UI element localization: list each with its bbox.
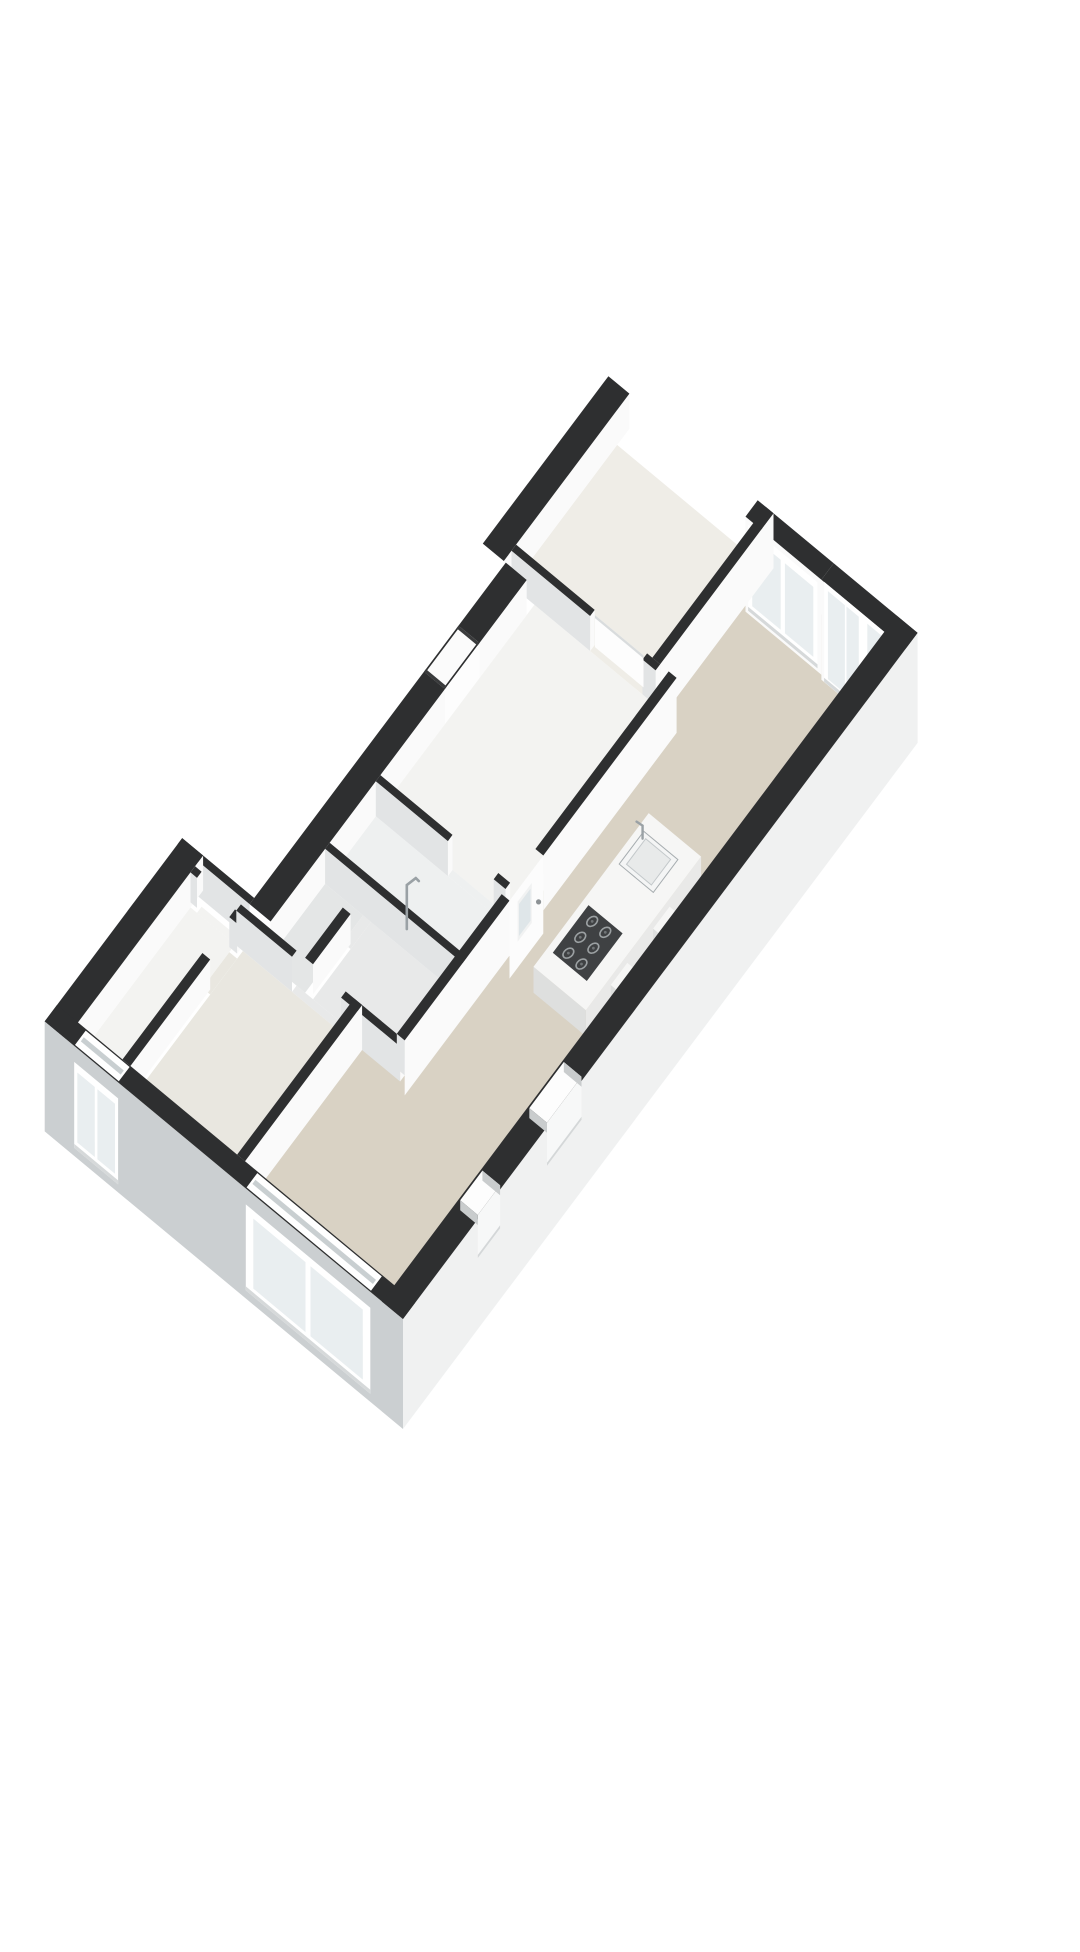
burner-dot — [580, 963, 583, 966]
burner-dot — [591, 920, 594, 923]
window-glass-ne-sliding-glass-doors — [828, 591, 845, 693]
wall-face-bath-e-wall-b — [448, 835, 453, 876]
sw-window-glass-left-wing-sw-window — [77, 1073, 95, 1158]
burner-dot — [579, 936, 582, 939]
wall-face-bedroom1-sw-wall-b — [590, 610, 595, 651]
burner-dot — [567, 952, 570, 955]
sw-window-glass-left-wing-sw-window — [97, 1089, 115, 1174]
wall-face-bed2-ne-wall-c — [191, 872, 198, 908]
floorplan-svg — [40, 16, 1080, 1936]
floorplan-figure — [40, 16, 1080, 1936]
burner-dot — [592, 947, 595, 950]
door-handle-icon — [536, 899, 541, 904]
wall-face-living-nw-wall-a — [397, 1034, 405, 1076]
burner-dot — [604, 931, 607, 934]
